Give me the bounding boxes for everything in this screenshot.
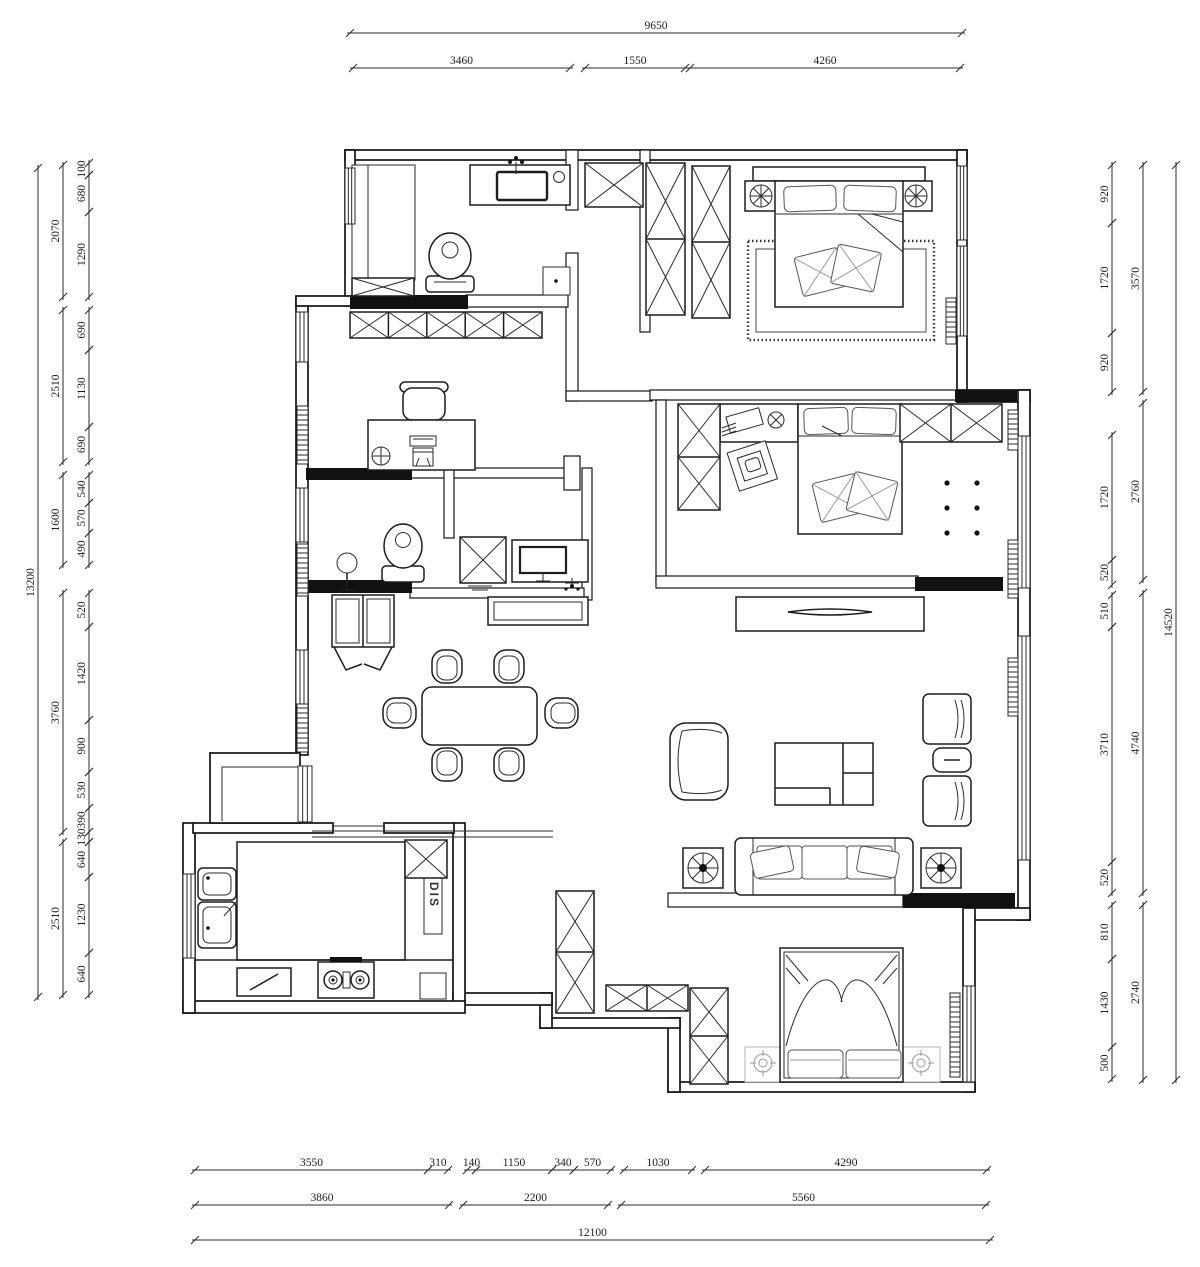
cabinet-x: [678, 404, 720, 510]
bed: [798, 404, 902, 534]
window: [957, 246, 967, 336]
toilet-icon: [426, 233, 474, 292]
dim-label: 390: [76, 811, 88, 829]
cabinet-x: [900, 404, 1002, 442]
computer-icon: [410, 436, 436, 466]
dimension-chain-bottom-row2: 386022005560: [191, 1192, 990, 1209]
dim-label: 1430: [1099, 991, 1111, 1014]
dim-label: 1720: [1099, 486, 1111, 509]
plant-stand-left: [683, 848, 723, 888]
dim-label: 1600: [50, 508, 62, 531]
window: [296, 650, 308, 706]
dim-label: 1550: [624, 55, 647, 67]
dim-label: 4260: [814, 55, 837, 67]
dim-label: 3570: [1130, 267, 1142, 290]
dim-label: 1420: [76, 662, 88, 685]
cabinet-x: [352, 278, 414, 296]
dim-label: 3710: [1099, 733, 1111, 756]
dim-label: 530: [76, 781, 88, 799]
cabinet-x: [692, 166, 730, 318]
dim-label: 920: [1099, 185, 1111, 203]
dim-label: 520: [1099, 869, 1111, 887]
stove-icon: [318, 957, 374, 998]
vanity: [488, 597, 588, 625]
dim-label: 140: [463, 1157, 481, 1169]
dim-label: 9650: [645, 20, 668, 32]
dim-label: 520: [76, 601, 88, 619]
window: [957, 166, 967, 240]
dim-label: 1150: [503, 1157, 526, 1169]
cabinet-x: [405, 840, 447, 878]
dim-label: 540: [76, 480, 88, 498]
floor-cushion: [727, 441, 777, 491]
office-chair: [400, 382, 448, 420]
dim-label: 3550: [300, 1157, 323, 1169]
radiator: [1008, 410, 1018, 450]
dim-label: 490: [76, 540, 88, 558]
radiator: [1008, 658, 1018, 716]
cabinet-x: [606, 985, 688, 1011]
double-bed: [775, 181, 903, 307]
bathroom-top: [352, 156, 570, 292]
dim-label: 1230: [76, 903, 88, 926]
dim-label: 690: [76, 436, 88, 454]
master-bedroom: [745, 167, 934, 340]
armchair-top: [923, 694, 971, 744]
dim-label: 2200: [524, 1192, 547, 1204]
radiator: [946, 298, 956, 344]
dim-label: 130: [76, 828, 88, 846]
dimension-chain-bottom-row1: 3550310140115034057010304290: [191, 1157, 991, 1174]
dimension-chain-bottom-overall: 12100: [191, 1227, 994, 1244]
sink-icon: [198, 868, 236, 948]
radiator: [950, 993, 960, 1077]
living-room: [670, 694, 971, 895]
bottom-bedroom: [745, 948, 940, 1082]
radiator: [1008, 540, 1018, 598]
dim-label: 520: [1099, 564, 1111, 582]
floor-plan-page: DIS 965034601550426035503101401150340570…: [0, 0, 1200, 1267]
dim-label: 100: [76, 160, 88, 178]
window: [345, 168, 355, 224]
dim-label: 570: [584, 1157, 602, 1169]
dimension-chain-top-row: 346015504260: [349, 55, 964, 72]
window: [296, 488, 308, 542]
dim-label: 2510: [50, 907, 62, 930]
window: [1018, 436, 1030, 588]
dining-table: [422, 687, 537, 745]
dim-label: 1130: [76, 377, 88, 400]
dim-label: 2740: [1130, 981, 1142, 1004]
dim-label: 2510: [50, 374, 62, 397]
cutting-board: [237, 968, 291, 996]
dimension-chain-right-mid: 3570276047402740: [1130, 161, 1147, 1084]
dis-box: DIS: [424, 876, 442, 934]
basin-unit: [512, 540, 588, 591]
sofa: [735, 838, 913, 895]
radiator: [297, 544, 308, 596]
dim-label: 570: [76, 509, 88, 527]
dining-room: [383, 650, 578, 781]
dim-label: 680: [76, 185, 88, 203]
dim-label: 2070: [50, 219, 62, 242]
dimension-chain-right-overall: 14520: [1163, 161, 1180, 1084]
generated-symbols: 9650346015504260355031014011503405701030…: [25, 20, 1180, 1244]
dim-label: 500: [1099, 1054, 1111, 1072]
dim-label: 3860: [311, 1192, 334, 1204]
cabinet-x: [460, 537, 506, 583]
dim-label: 3460: [450, 55, 473, 67]
dim-label: 690: [76, 321, 88, 339]
dis-label: DIS: [427, 882, 441, 908]
dim-label: 900: [76, 737, 88, 755]
cabinet-x: [690, 988, 728, 1084]
window: [183, 874, 195, 958]
radiator: [297, 406, 308, 464]
dimension-chain-top-overall: 9650: [346, 20, 966, 37]
clock-icon: [372, 447, 390, 465]
coffee-table: [775, 743, 873, 805]
headboard: [753, 167, 925, 181]
dim-label: 13200: [25, 568, 37, 597]
window: [963, 986, 975, 1082]
cabinet-x: [646, 163, 685, 315]
dim-label: 12100: [578, 1227, 607, 1239]
bed: [780, 948, 903, 1082]
toilet-icon: [382, 524, 424, 582]
cabinet-x: [556, 891, 594, 1013]
dim-label: 310: [429, 1157, 447, 1169]
dimension-chain-left-overall: 13200: [25, 164, 42, 1001]
dim-label: 4740: [1130, 731, 1142, 754]
corner-unit: [420, 973, 446, 999]
dimension-chain-right-inner: 9201720920172052051037105208101430500: [1099, 161, 1116, 1083]
decor-dots: [944, 480, 979, 535]
island: [237, 842, 405, 960]
side-table: [933, 748, 971, 772]
floor-plan-drawing: DIS 965034601550426035503101401150340570…: [0, 0, 1200, 1267]
tv-console: [736, 597, 924, 631]
window: [296, 312, 308, 362]
dim-label: 14520: [1163, 608, 1175, 637]
dimension-chain-left-inner: 1006801290690113069054057049052014209005…: [76, 159, 93, 999]
window: [298, 766, 312, 822]
dim-label: 1030: [647, 1157, 670, 1169]
hallway-top: [543, 267, 570, 295]
nightstand-right: [900, 181, 932, 211]
dim-label: 3760: [50, 701, 62, 724]
dim-label: 1290: [76, 243, 88, 266]
dim-label: 810: [1099, 923, 1111, 941]
cabinet-x: [350, 312, 542, 338]
dim-label: 640: [76, 851, 88, 869]
nightstand-left: [745, 181, 777, 211]
dim-label: 920: [1099, 354, 1111, 372]
plant-stand-right: [921, 848, 961, 888]
window: [1018, 636, 1030, 860]
dim-label: 5560: [792, 1192, 815, 1204]
dimension-chain-left-mid: 20702510160037602510: [50, 161, 67, 999]
dim-label: 2760: [1130, 480, 1142, 503]
accent-chair: [670, 723, 728, 800]
radiator: [297, 704, 308, 752]
cabinet-x: [585, 163, 643, 207]
dim-label: 640: [76, 965, 88, 983]
dim-label: 4290: [835, 1157, 858, 1169]
dim-label: 510: [1099, 602, 1111, 620]
open-cabinet: [332, 595, 394, 670]
dim-label: 1720: [1099, 266, 1111, 289]
armchair-bottom: [923, 776, 971, 826]
dim-label: 340: [554, 1157, 572, 1169]
study: [368, 382, 475, 470]
